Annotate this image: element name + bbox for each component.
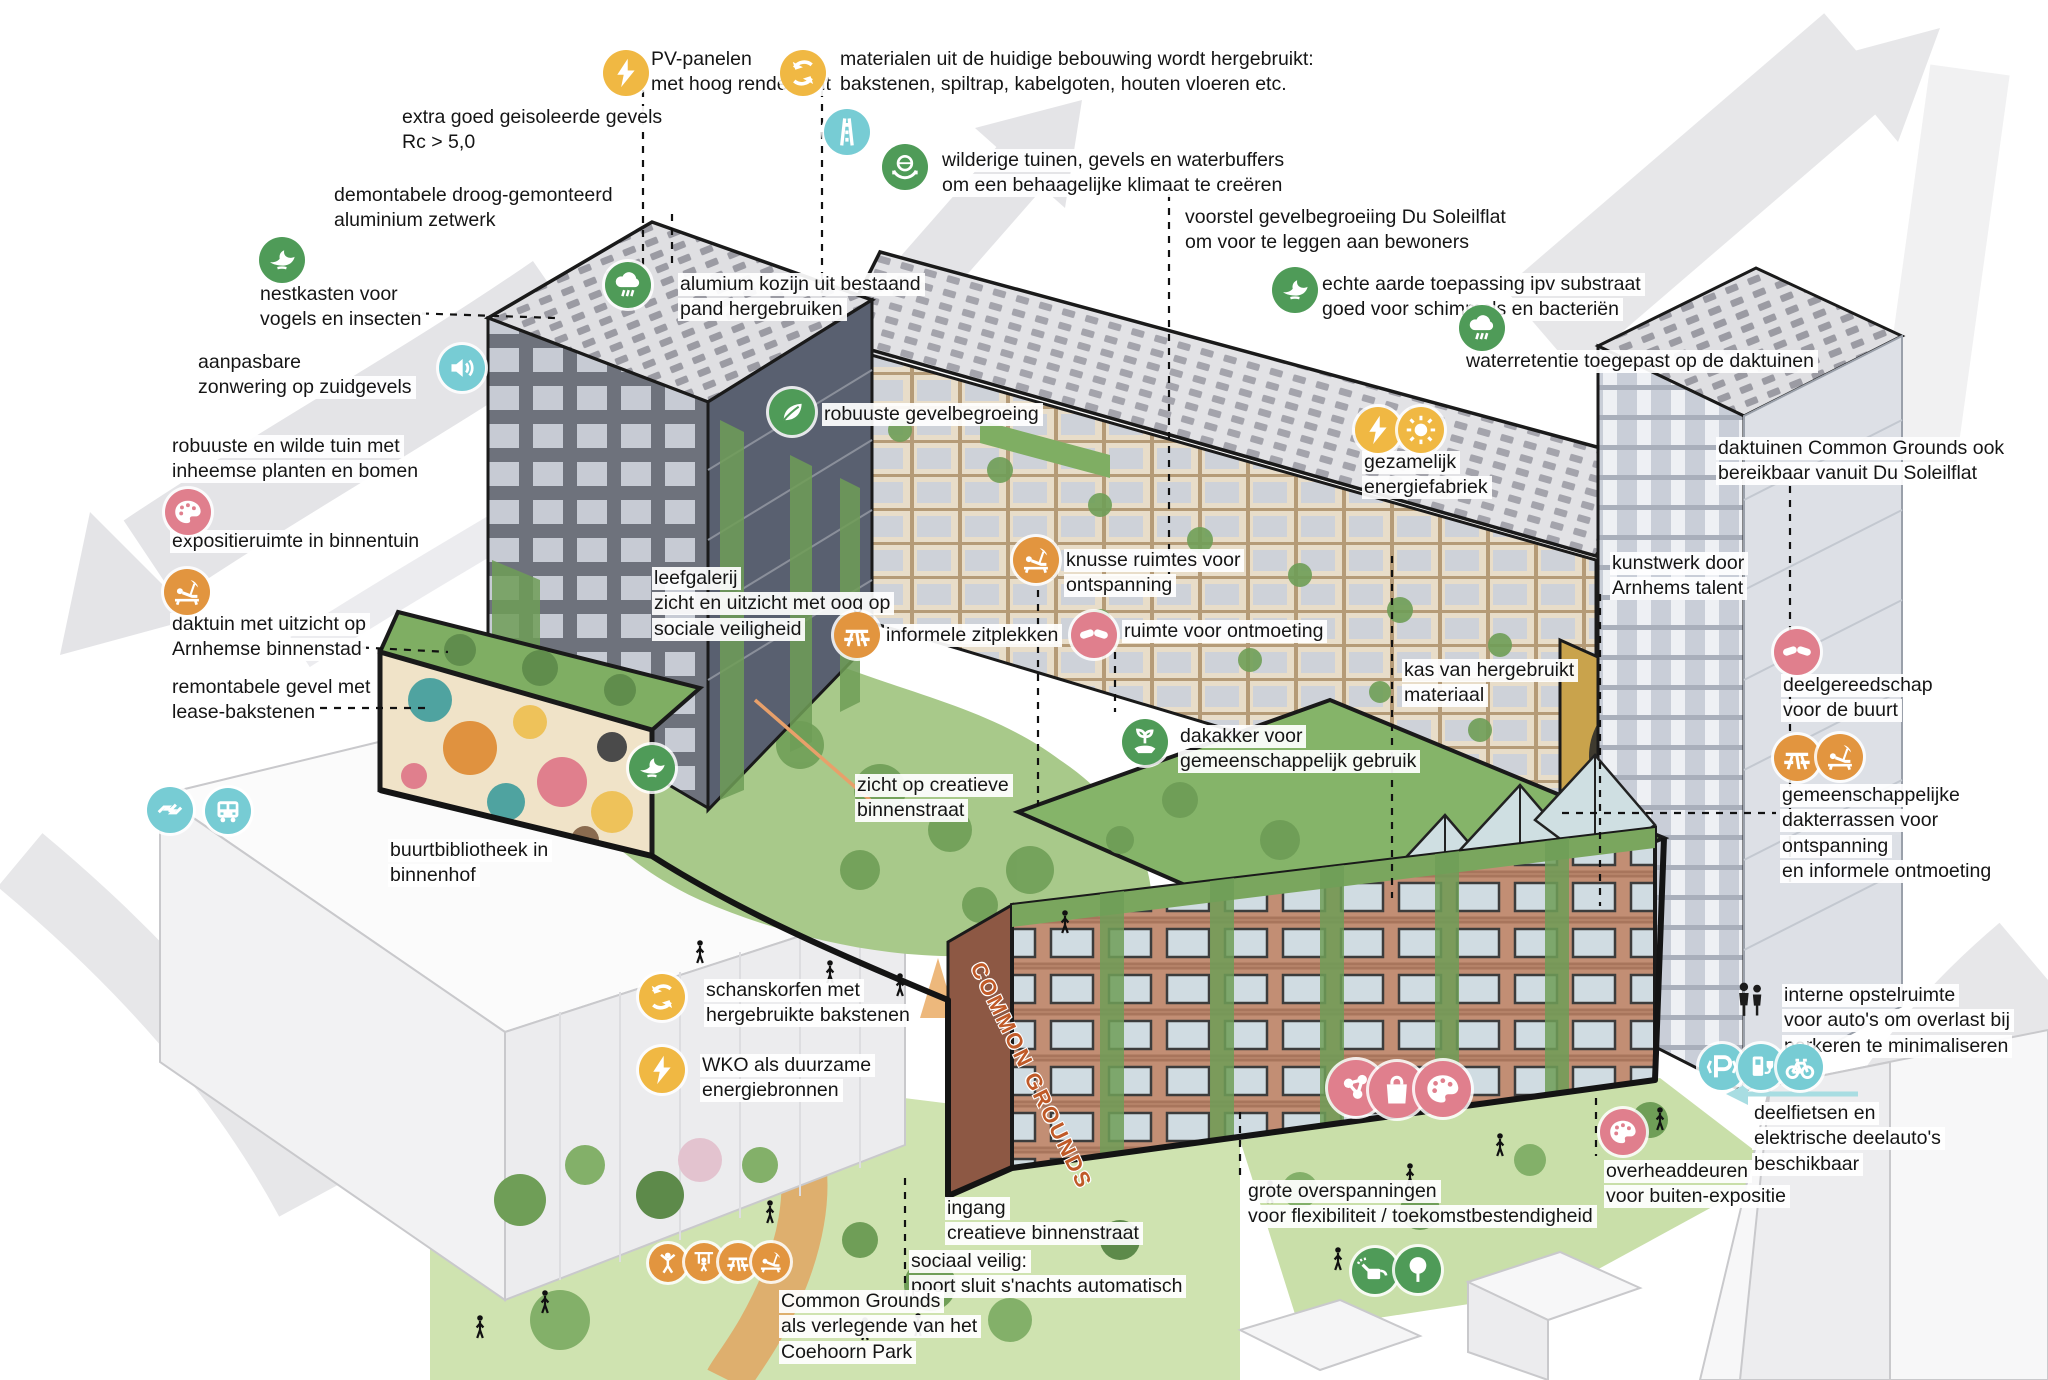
hands-globe-icon bbox=[882, 144, 928, 190]
swing-icon bbox=[685, 1243, 723, 1281]
annotation-robuuste-gevelbegroeing: robuuste gevelbegroeing bbox=[822, 402, 1043, 427]
annotation-nestkasten: nestkasten voorvogels en insecten bbox=[258, 282, 426, 333]
annotation-common-grounds-park: Common Groundsals verlegende van hetCoeh… bbox=[779, 1289, 981, 1365]
dove-icon bbox=[1272, 267, 1318, 313]
people-icon bbox=[1723, 973, 1777, 1027]
diagram-stage: COMMON GROUNDS PV-panelenmet hoog rendem… bbox=[0, 0, 2048, 1380]
picnic-icon bbox=[834, 612, 880, 658]
dove-icon bbox=[629, 745, 675, 791]
bike-icon bbox=[1777, 1044, 1823, 1090]
motorway-icon bbox=[824, 109, 870, 155]
wateringcan-icon bbox=[1352, 1248, 1398, 1294]
annotation-daktuin-uitzicht: daktuin met uitzicht opArnhemse binnenst… bbox=[170, 612, 370, 663]
annotation-robuuste-tuin: robuuste en wilde tuin metinheemse plant… bbox=[170, 434, 422, 485]
annotation-interne-opstelruimte: interne opstelruimtevoor auto's om overl… bbox=[1782, 983, 2014, 1059]
bolt-icon bbox=[639, 1047, 685, 1093]
deckchair-icon bbox=[1013, 537, 1059, 583]
speaker-icon bbox=[439, 345, 485, 391]
annotation-gemeenschappelijke-dakterrassen: gemeenschappelijkedakterrassen voor onts… bbox=[1780, 783, 2048, 884]
dove-icon bbox=[259, 237, 305, 283]
palette-icon bbox=[1600, 1109, 1646, 1155]
annotation-zicht-binnenstraat: zicht op creatievebinnenstraat bbox=[855, 773, 1013, 824]
handshake-icon bbox=[1071, 612, 1117, 658]
deckchair-icon bbox=[1817, 734, 1863, 780]
annotation-daktuinen-common-grounds: daktuinen Common Grounds ookbereikbaar v… bbox=[1716, 436, 2008, 487]
annotation-informele-zitplekken: informele zitplekken bbox=[884, 623, 1062, 648]
annotation-extra-geisoleerd: extra goed geisoleerde gevelsRc > 5,0 bbox=[400, 105, 666, 156]
annotation-remontabele-gevel: remontabele gevel metlease-bakstenen bbox=[170, 675, 374, 726]
tree-icon bbox=[1395, 1247, 1441, 1293]
annotation-schanskorfen: schanskorfen methergebruikte bakstenen bbox=[704, 978, 914, 1029]
annotation-knusse-ruimtes: knusse ruimtes voorontspanning bbox=[1064, 548, 1244, 599]
annotation-overheaddeuren: overheaddeurenvoor buiten-expositie bbox=[1604, 1159, 1790, 1210]
annotation-deelgereedschap: deelgereedschapvoor de buurt bbox=[1781, 673, 1937, 724]
annotation-gezamelijk-energiefabriek: gezamelijkenergiefabriek bbox=[1362, 450, 1492, 501]
annotation-voorstel-gevelbegroeiing: voorstel gevelbegroeiing Du Soleilflatom… bbox=[1183, 205, 1510, 256]
annotation-kas-hergebruikt: kas van hergebruiktmateriaal bbox=[1402, 658, 1578, 709]
annotation-waterretentie: waterretentie toegepast op de daktuinen bbox=[1464, 349, 1818, 374]
annotation-materialen: materialen uit de huidige bebouwing word… bbox=[838, 47, 1318, 98]
bus-icon bbox=[205, 788, 251, 834]
sprout-icon bbox=[1122, 719, 1168, 765]
annotation-demontabele: demontabele droog-gemonteerdaluminium ze… bbox=[332, 183, 617, 234]
annotation-alumium-kozijn: alumium kozijn uit bestaandpand hergebru… bbox=[678, 272, 925, 323]
climb-icon bbox=[649, 1244, 687, 1282]
annotation-kunstwerk: kunstwerk doorArnhems talent bbox=[1610, 551, 1748, 602]
annotation-aanpasbare-zonwering: aanpasbarezonwering op zuidgevels bbox=[196, 350, 416, 401]
deckchair-icon bbox=[164, 569, 210, 615]
annotation-ruimte-ontmoeting: ruimte voor ontmoeting bbox=[1122, 619, 1327, 644]
annotation-dakakker: dakakker voorgemeenschappelijk gebruik bbox=[1178, 724, 1420, 775]
wave-icon bbox=[147, 787, 193, 833]
annotation-grote-overspanningen: grote overspanningenvoor flexibiliteit /… bbox=[1246, 1179, 1597, 1230]
handshake-icon bbox=[1774, 629, 1820, 675]
leaf-icon bbox=[769, 389, 815, 435]
bolt-icon bbox=[1355, 407, 1401, 453]
annotation-ingang-binnenstraat: ingangcreatieve binnenstraat bbox=[945, 1196, 1143, 1247]
bolt-icon bbox=[603, 50, 649, 96]
sun-icon bbox=[1398, 407, 1444, 453]
picnic-icon bbox=[1774, 735, 1820, 781]
palette-icon bbox=[1415, 1061, 1471, 1117]
raincloud-icon bbox=[605, 262, 651, 308]
raincloud-icon bbox=[1459, 305, 1505, 351]
recycle-icon bbox=[780, 50, 826, 96]
annotation-buurtbibliotheek: buurtbibliotheek inbinnenhof bbox=[388, 838, 552, 889]
deckchair-icon bbox=[752, 1243, 790, 1281]
recycle-icon bbox=[639, 974, 685, 1020]
annotation-wilderige-tuinen: wilderige tuinen, gevels en waterbuffers… bbox=[940, 148, 1288, 199]
palette-icon bbox=[165, 489, 211, 535]
annotation-expositieruimte: expositieruimte in binnentuin bbox=[170, 529, 423, 554]
annotation-wko: WKO als duurzameenergiebronnen bbox=[700, 1053, 875, 1104]
